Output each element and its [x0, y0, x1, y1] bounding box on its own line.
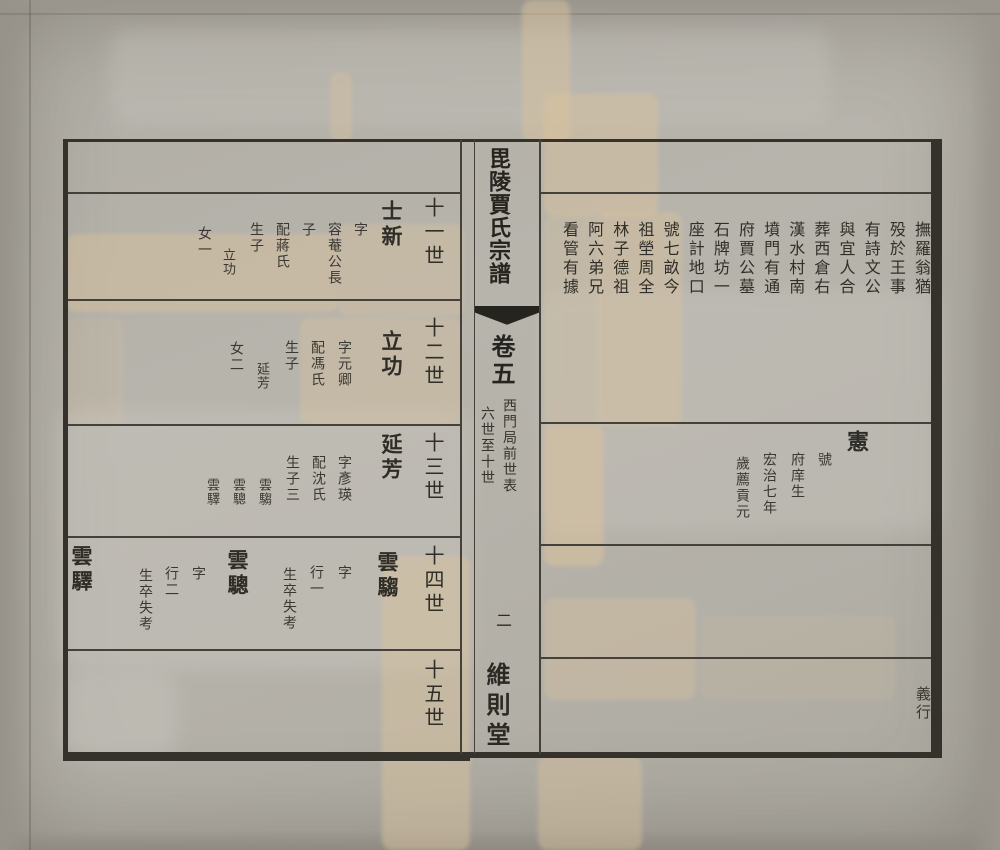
hall-name: 維則堂 [483, 662, 507, 752]
child-name: 立功 [222, 248, 235, 276]
stain [544, 598, 696, 700]
generation-header: 十四世 [422, 545, 442, 617]
paper-patch [60, 410, 470, 670]
stain [522, 0, 570, 142]
generation-range: 六世至十世 [479, 406, 493, 486]
spine-line-left [460, 139, 462, 754]
ancestor-name: 延芳 [380, 433, 401, 483]
table-line [68, 649, 461, 651]
spine-line-inner [474, 139, 475, 754]
table-line [68, 299, 461, 301]
ancestor-name: 士新 [380, 200, 401, 250]
generation-header: 十一世 [422, 197, 442, 269]
child-name: 延芳 [256, 362, 269, 390]
burial-note-column: 墳門有通 [757, 221, 777, 317]
entry-note: 女二 [228, 341, 242, 373]
table-line [68, 536, 461, 538]
table-line [540, 422, 931, 424]
entry-note: 配馮氏 [309, 340, 323, 388]
stain [330, 72, 352, 142]
burial-note-column: 阿六弟兄 [581, 221, 601, 317]
scan-edge-left [0, 0, 32, 850]
scan-edge-top [0, 0, 1000, 16]
burial-note-column: 座計地口 [682, 221, 702, 317]
child-name: 雲騶 [258, 478, 271, 506]
table-line [68, 192, 461, 194]
table-line [540, 544, 931, 546]
frame-border-top [63, 139, 937, 142]
page-number: 二 [493, 612, 509, 630]
entry-note: 生卒失考 [137, 568, 151, 632]
entry-note: 生子 [283, 340, 297, 372]
table-line [540, 657, 931, 659]
burial-note-column: 石牌坊一 [707, 221, 727, 317]
table-line [68, 424, 461, 426]
stain [64, 318, 124, 424]
entry-note: 行一 [308, 565, 322, 597]
entry-note: 歲薦貢元 [734, 456, 748, 520]
paper-edge-line [29, 0, 31, 850]
section-title: 西門局前世表 [501, 398, 515, 494]
frame-border-left [63, 139, 68, 758]
burial-note-block: 撫羅翁猶 殁於王事 有詩文公 與宜人合 葬西倉右 漢水村南 墳門有通 府賈公墓 … [556, 221, 928, 317]
frame-border-bottom-thick [63, 753, 470, 761]
burial-note-column: 與宜人合 [833, 221, 853, 317]
scan-edge-right [970, 0, 1000, 850]
entry-note: 子 [300, 222, 314, 238]
entry-note: 容菴公長 [326, 222, 340, 286]
entry-note: 字彥瑛 [336, 455, 350, 503]
entry-note: 生子 [248, 222, 262, 254]
burial-note-column: 有詩文公 [858, 221, 878, 317]
entry-note: 字 [336, 565, 350, 581]
spine-line-right [539, 139, 541, 754]
entry-note: 字元卿 [336, 340, 350, 388]
entry-note: 字 [352, 222, 366, 238]
book-title: 毘陵賈氏宗譜 [487, 147, 509, 285]
burial-note-column: 殁於王事 [883, 221, 903, 317]
burial-note-column: 看管有據 [556, 221, 576, 317]
burial-note-column: 府賈公墓 [732, 221, 752, 317]
frame-border-right [931, 139, 942, 758]
entry-note: 女一 [196, 226, 210, 258]
entry-note: 字 [190, 566, 204, 582]
ancestor-name: 雲驄 [226, 549, 247, 599]
child-name: 雲驄 [232, 478, 245, 506]
fishtail-mark [475, 306, 539, 328]
stain [544, 94, 658, 216]
ancestor-name: 憲 [845, 430, 867, 456]
entry-note: 生子三 [284, 455, 298, 503]
entry-note: 配蔣氏 [274, 222, 288, 270]
burial-note-column: 撫羅翁猶 [908, 221, 928, 317]
paper-patch [64, 672, 176, 756]
paper-patch [110, 30, 830, 125]
scan-edge-bottom [0, 830, 1000, 850]
entry-note: 宏治七年 [761, 452, 775, 516]
category-label: 義行 [914, 686, 929, 722]
ancestor-name: 雲騶 [376, 551, 397, 601]
ancestor-name: 雲驛 [70, 545, 91, 595]
burial-note-column: 號七畝今 [657, 221, 677, 317]
burial-note-column: 葬西倉右 [807, 221, 827, 317]
entry-note: 生卒失考 [281, 567, 295, 631]
entry-note: 行二 [163, 566, 177, 598]
generation-header: 十五世 [422, 659, 442, 731]
child-name: 雲驛 [206, 478, 219, 506]
table-line [540, 192, 931, 194]
volume-label: 卷五 [488, 334, 512, 388]
burial-note-column: 漢水村南 [782, 221, 802, 317]
paper-edge-line [0, 13, 1000, 15]
generation-header: 十三世 [422, 432, 442, 504]
burial-note-column: 林子德祖 [606, 221, 626, 317]
generation-header: 十二世 [422, 317, 442, 389]
genealogy-book-scan: 毘陵賈氏宗譜 卷五 西門局前世表 六世至十世 二 維則堂 撫羅翁猶 殁於王事 有… [0, 0, 1000, 850]
entry-note: 配沈氏 [310, 455, 324, 503]
stain [538, 756, 642, 850]
entry-note: 號 [816, 452, 830, 468]
burial-note-column: 祖塋周全 [631, 221, 651, 317]
entry-note: 府庠生 [789, 452, 803, 500]
ancestor-name: 立功 [380, 330, 401, 380]
